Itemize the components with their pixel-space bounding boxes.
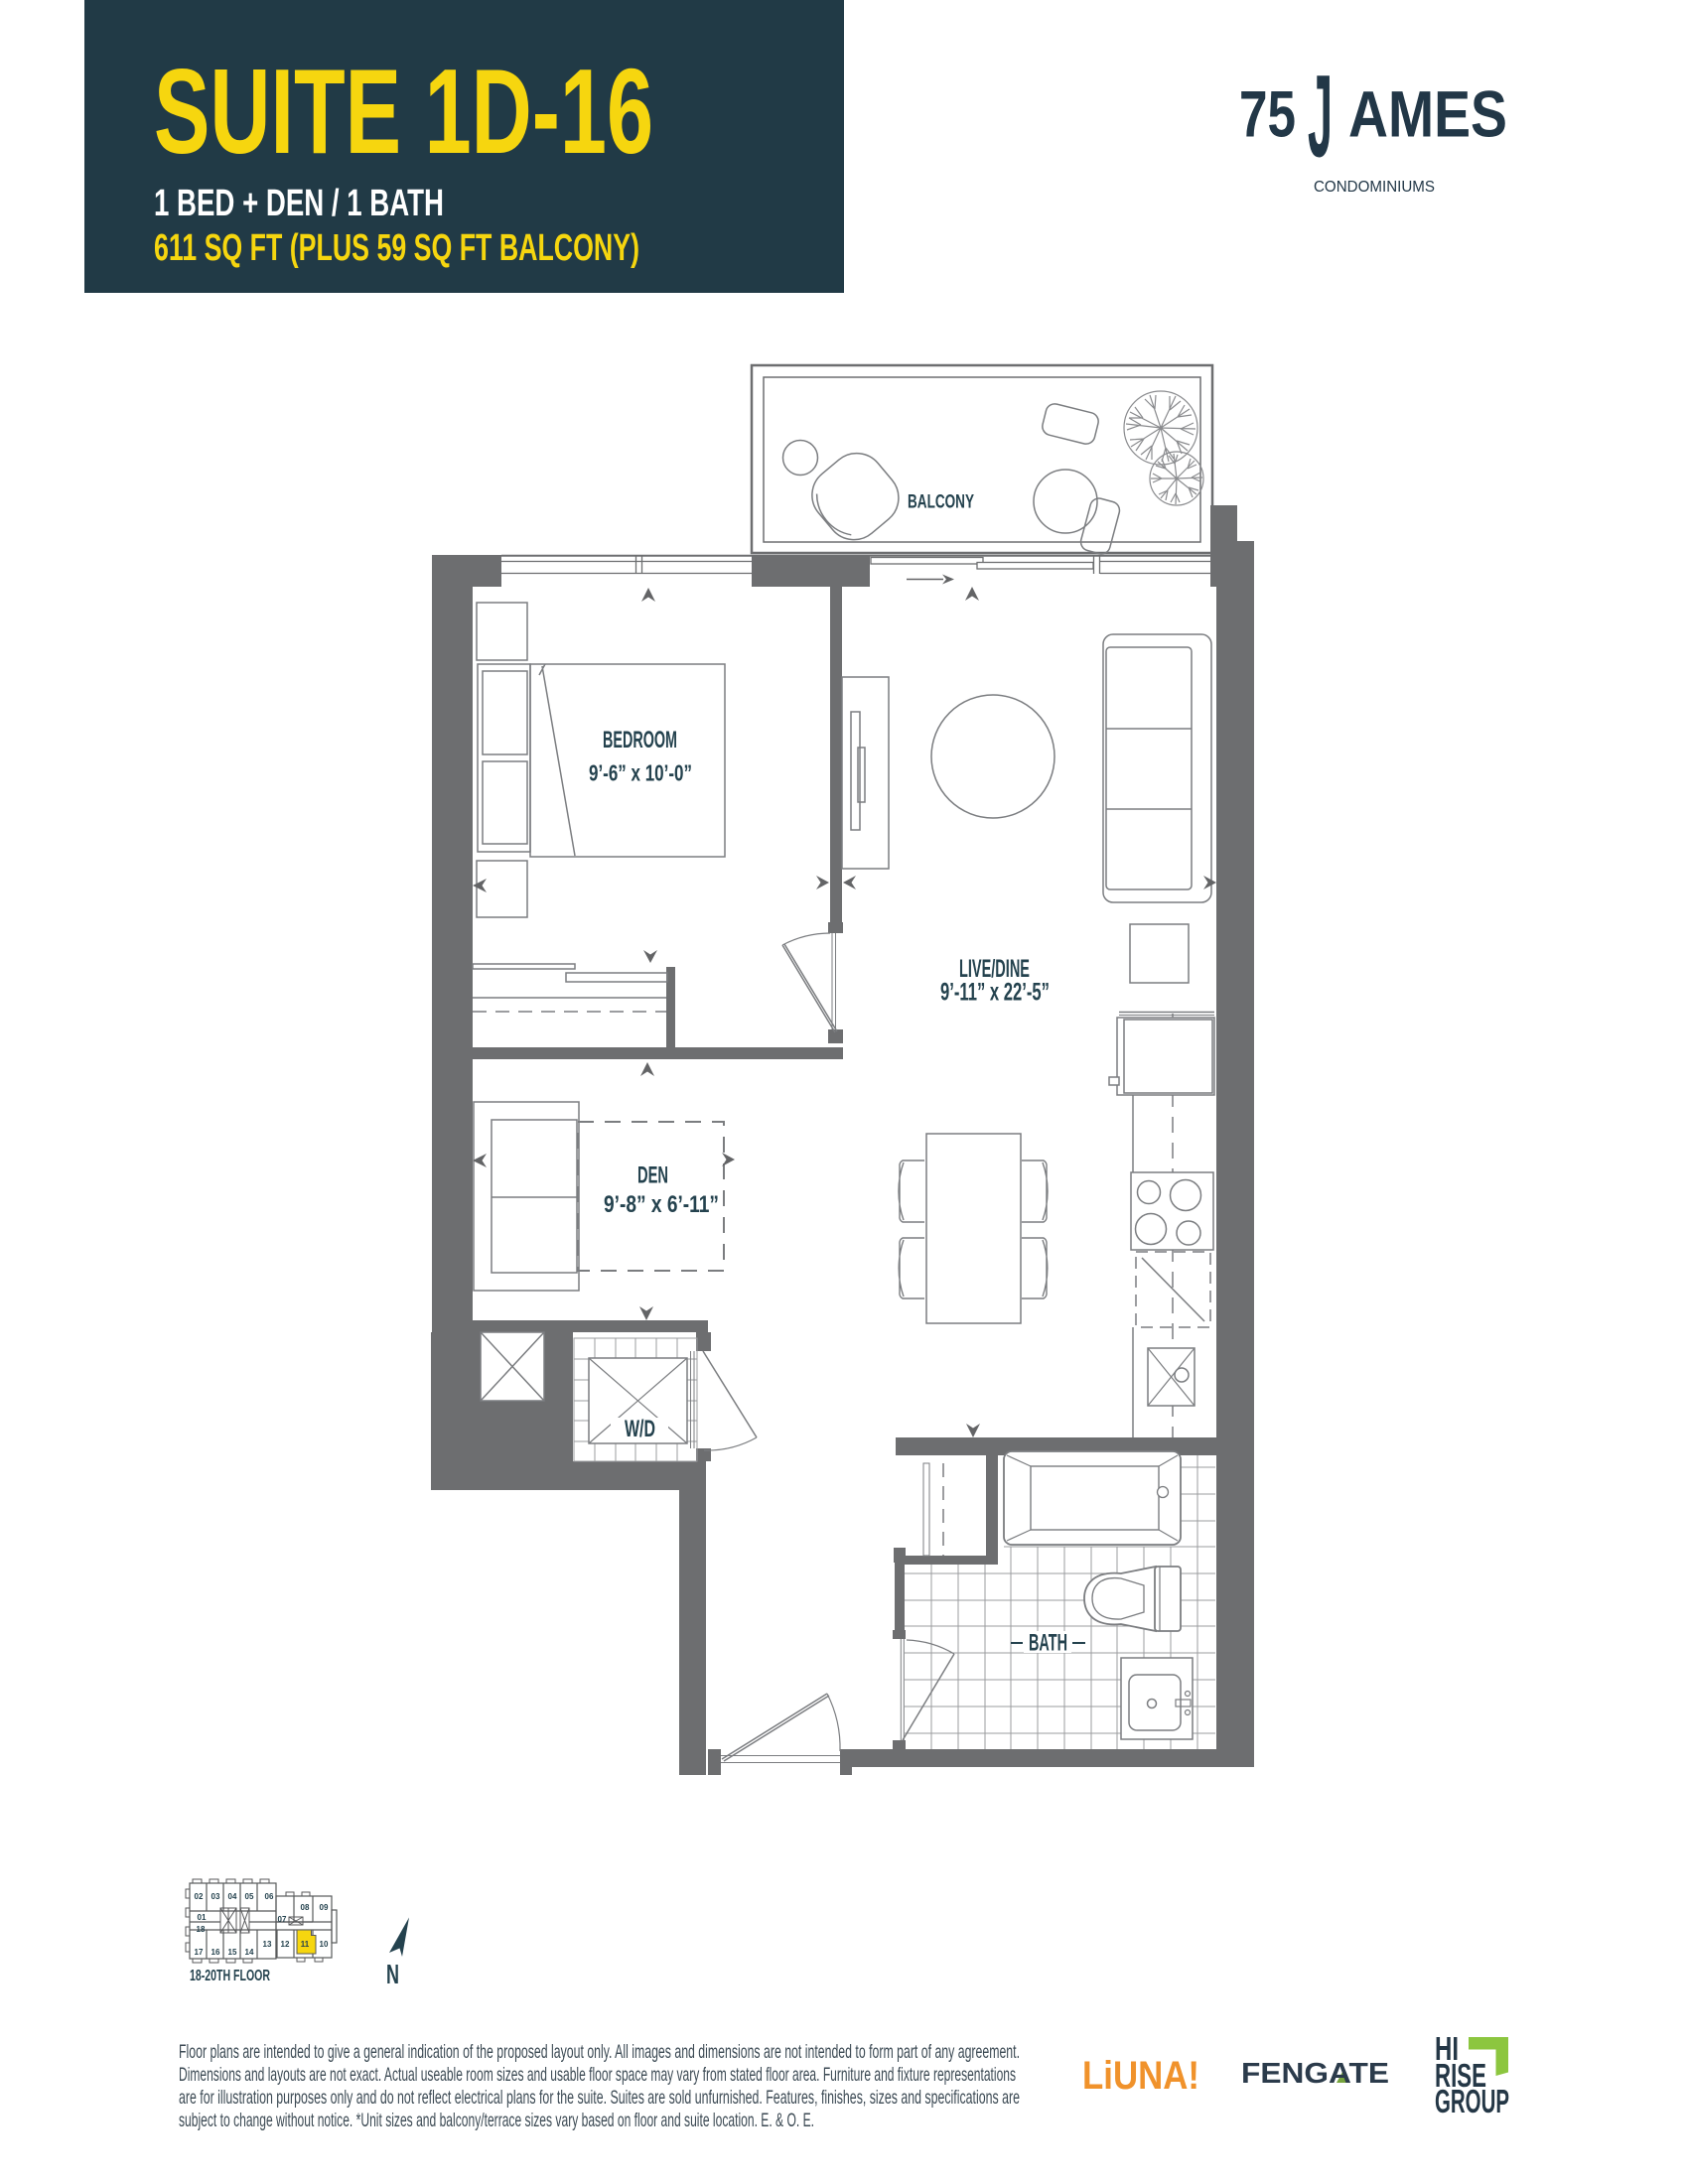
svg-text:FENGATE: FENGATE [1241, 2058, 1389, 2090]
svg-text:9’-8” x 6’-11”: 9’-8” x 6’-11” [604, 1191, 719, 1218]
svg-text:18: 18 [197, 1925, 206, 1934]
svg-text:W/D: W/D [625, 1416, 655, 1442]
svg-text:are for illustration purposes: are for illustration purposes only and d… [179, 2087, 1020, 2109]
svg-text:14: 14 [245, 1948, 254, 1957]
svg-text:LiUNA!: LiUNA! [1082, 2054, 1199, 2098]
svg-text:BATH: BATH [1029, 1630, 1067, 1657]
svg-text:9’-6” x 10’-0”: 9’-6” x 10’-0” [589, 760, 692, 786]
svg-text:subject to change without noti: subject to change without notice. *Unit … [179, 2110, 814, 2131]
svg-text:07: 07 [278, 1915, 287, 1924]
svg-text:1 BED + DEN / 1 BATH: 1 BED + DEN / 1 BATH [154, 183, 444, 224]
svg-text:AMES: AMES [1348, 77, 1507, 151]
svg-text:05: 05 [245, 1892, 254, 1901]
svg-text:09: 09 [320, 1903, 329, 1912]
svg-text:06: 06 [265, 1892, 274, 1901]
svg-text:BEDROOM: BEDROOM [603, 727, 677, 753]
svg-text:18-20TH FLOOR: 18-20TH FLOOR [190, 1968, 270, 1984]
svg-text:13: 13 [263, 1940, 272, 1949]
svg-text:BALCONY: BALCONY [908, 492, 974, 513]
svg-text:11: 11 [301, 1940, 310, 1949]
svg-text:02: 02 [195, 1892, 204, 1901]
svg-text:12: 12 [281, 1940, 290, 1949]
svg-text:Floor plans are intended to gi: Floor plans are intended to give a gener… [179, 2041, 1020, 2063]
svg-text:10: 10 [320, 1940, 329, 1949]
svg-text:08: 08 [301, 1903, 310, 1912]
svg-text:9’-11” x 22’-5”: 9’-11” x 22’-5” [940, 979, 1050, 1007]
svg-text:SUITE 1D-16: SUITE 1D-16 [154, 44, 653, 179]
svg-text:75: 75 [1239, 77, 1296, 151]
svg-text:15: 15 [228, 1948, 237, 1957]
svg-text:01: 01 [198, 1913, 207, 1922]
svg-text:GROUP: GROUP [1435, 2083, 1509, 2119]
svg-text:03: 03 [211, 1892, 220, 1901]
svg-text:611 SQ FT (PLUS 59 SQ FT BALCO: 611 SQ FT (PLUS 59 SQ FT BALCONY) [154, 227, 639, 269]
svg-text:DEN: DEN [637, 1162, 668, 1189]
svg-text:Dimensions and layouts are not: Dimensions and layouts are not exact. Ac… [179, 2064, 1016, 2086]
svg-text:16: 16 [211, 1948, 220, 1957]
svg-text:J: J [1308, 52, 1333, 183]
svg-text:04: 04 [228, 1892, 237, 1901]
svg-text:CONDOMINIUMS: CONDOMINIUMS [1314, 179, 1435, 196]
svg-text:17: 17 [195, 1948, 204, 1957]
svg-text:N: N [386, 1959, 399, 1989]
